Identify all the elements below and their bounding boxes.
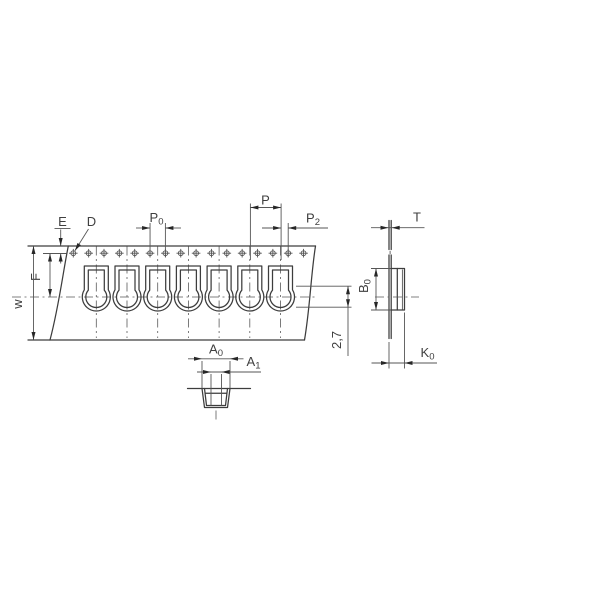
technical-drawing-canvas: P P2 P0 E D F <box>0 0 600 600</box>
label-A0: A0 <box>209 342 223 360</box>
sprocket-hole <box>69 249 78 258</box>
tape-right-break-line <box>305 246 316 340</box>
dim-T: T <box>371 210 425 230</box>
drawing-sheet: P P2 P0 E D F <box>0 0 600 600</box>
component-pockets <box>82 247 294 339</box>
label-B0: B0 <box>356 279 374 293</box>
label-P2: P2 <box>306 211 320 229</box>
sprocket-hole <box>84 249 93 258</box>
label-2-7: 2,7 <box>329 331 344 349</box>
dim-K0: K0 <box>372 313 438 369</box>
sprocket-hole <box>253 249 262 258</box>
sprocket-hole <box>238 249 247 258</box>
label-F: F <box>28 273 43 281</box>
sprocket-hole <box>176 249 185 258</box>
label-A1: A1 <box>247 354 261 372</box>
label-E: E <box>58 214 67 229</box>
sprocket-hole <box>115 249 124 258</box>
section-pocket-inner <box>205 389 228 406</box>
sprocket-hole <box>207 249 216 258</box>
label-K0: K0 <box>421 345 435 363</box>
pocket-section-view <box>188 389 251 420</box>
dim-w: w <box>10 246 36 340</box>
sprocket-hole <box>223 249 232 258</box>
dim-P2: P2 <box>262 211 328 258</box>
component-pocket <box>174 247 202 339</box>
dim-P0: P0 <box>136 210 181 257</box>
label-P0: P0 <box>150 210 164 228</box>
sprocket-hole <box>130 249 139 258</box>
dim-F: F <box>28 254 52 298</box>
sprocket-hole <box>192 249 201 258</box>
sprocket-hole <box>299 249 308 258</box>
dim-P: P <box>250 193 281 261</box>
label-P: P <box>261 193 270 208</box>
side-view-tape <box>375 221 419 339</box>
component-pocket <box>144 247 172 339</box>
sprocket-hole <box>269 249 278 258</box>
dim-A0: A0 <box>188 342 244 389</box>
label-T: T <box>413 210 421 225</box>
dim-B0: B0 <box>356 269 391 311</box>
component-pocket <box>267 247 295 339</box>
component-pocket <box>113 247 141 339</box>
component-pocket <box>236 247 264 339</box>
component-pocket <box>205 247 233 339</box>
front-view-tape <box>12 246 316 340</box>
sprocket-hole <box>100 249 109 258</box>
label-w: w <box>10 299 25 310</box>
component-pocket <box>82 247 110 339</box>
label-D: D <box>87 214 96 229</box>
